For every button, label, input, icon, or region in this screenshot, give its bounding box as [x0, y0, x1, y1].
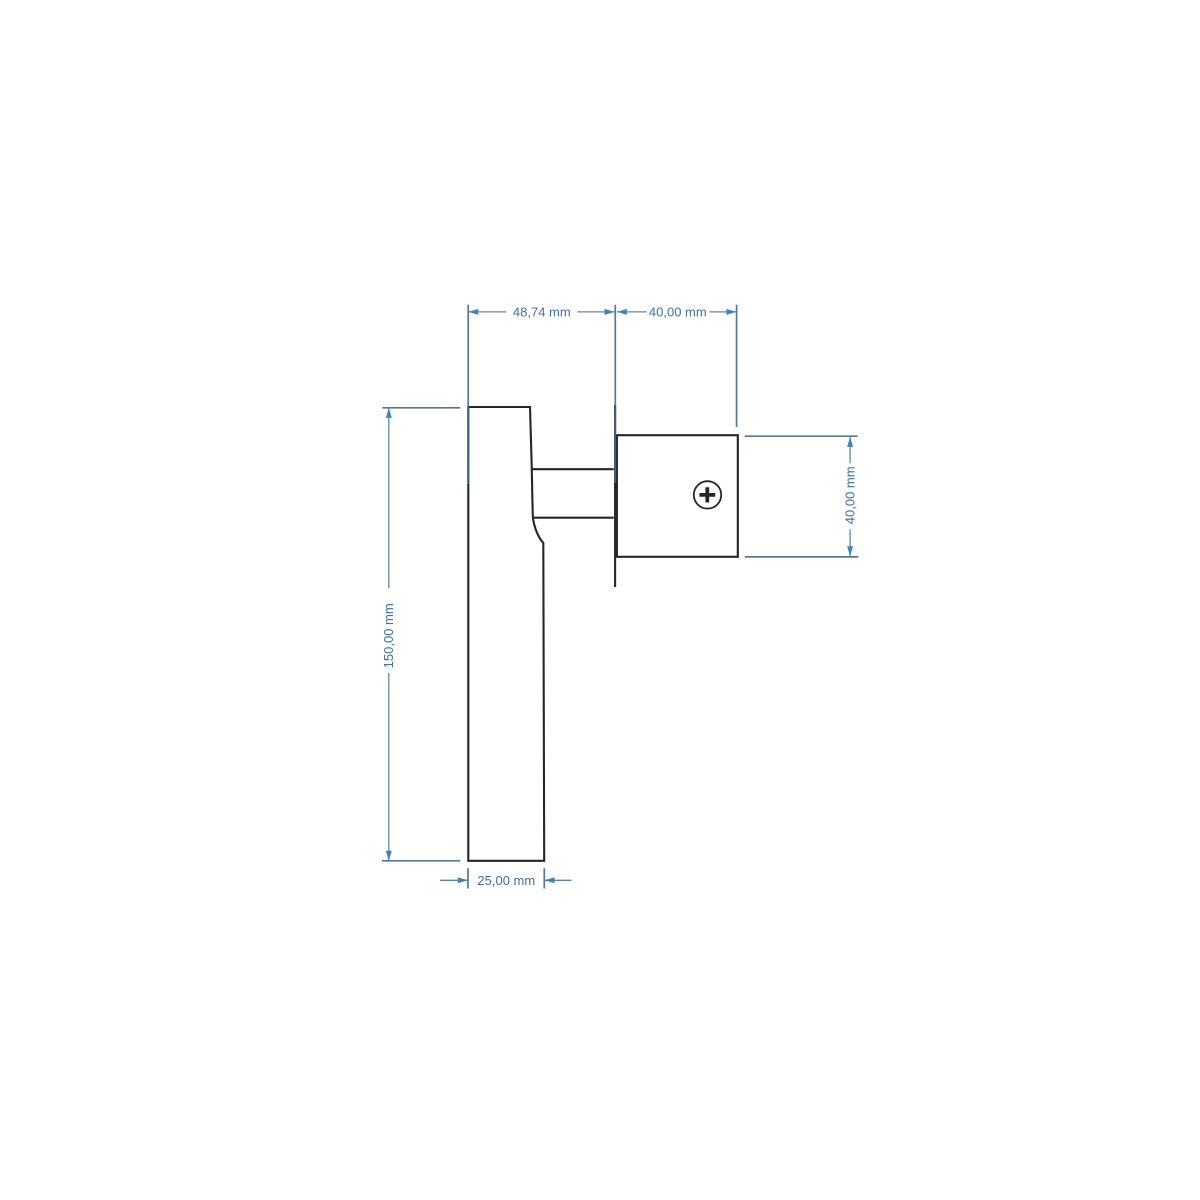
svg-text:25,00 mm: 25,00 mm [477, 873, 535, 888]
svg-text:40,00 mm: 40,00 mm [843, 466, 858, 524]
svg-text:48,74 mm: 48,74 mm [513, 304, 571, 319]
svg-text:40,00 mm: 40,00 mm [649, 304, 707, 319]
svg-text:150,00 mm: 150,00 mm [381, 603, 396, 668]
